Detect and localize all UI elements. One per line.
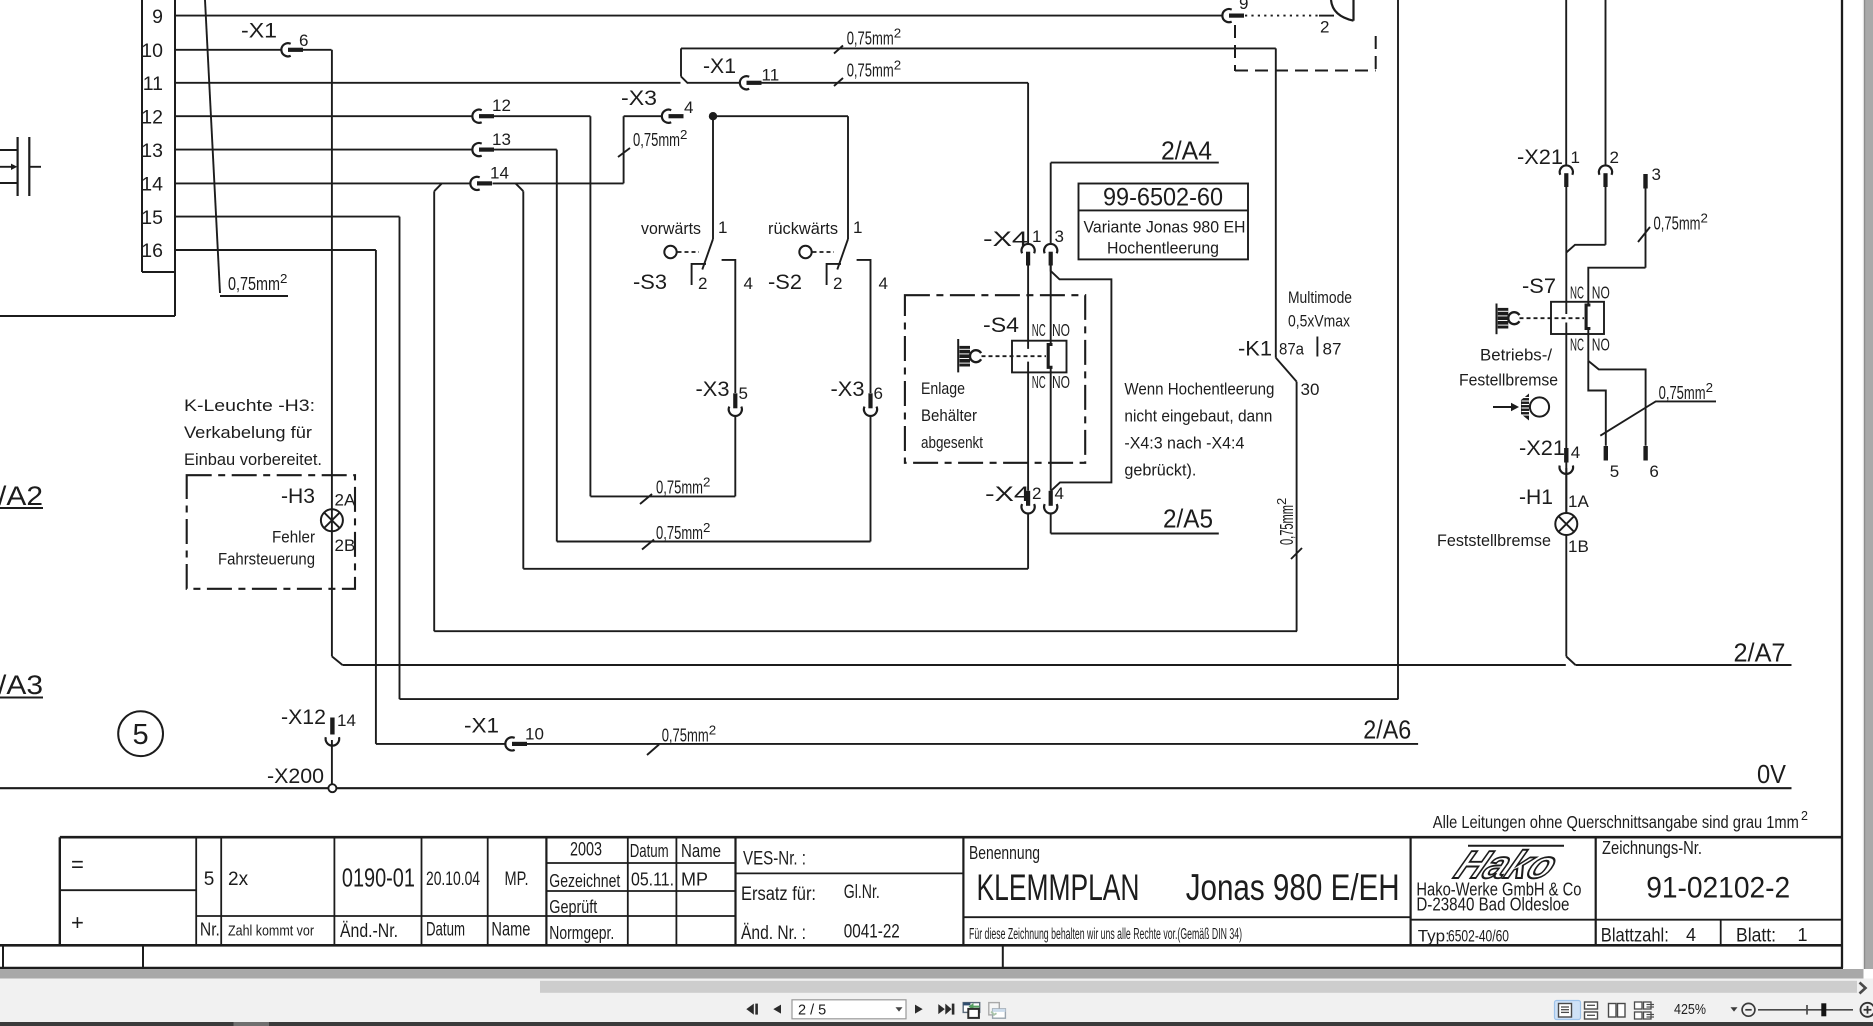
svg-text:-X12: -X12 (281, 705, 326, 729)
svg-text:2: 2 (698, 274, 707, 293)
svg-text:0,75mm: 0,75mm (228, 273, 280, 294)
svg-text:2: 2 (894, 58, 901, 73)
svg-text:14: 14 (490, 164, 509, 183)
svg-text:NC: NC (1570, 335, 1584, 355)
svg-text:-X1: -X1 (703, 54, 736, 78)
svg-text:0,5xVmax: 0,5xVmax (1288, 312, 1350, 331)
svg-text:3: 3 (1652, 165, 1661, 184)
svg-text:Ersatz für:: Ersatz für: (741, 884, 816, 905)
svg-text:5: 5 (739, 384, 748, 403)
svg-text:Fehler: Fehler (272, 529, 315, 547)
svg-text:Nr.: Nr. (200, 920, 220, 940)
svg-text:abgesenkt: abgesenkt (921, 433, 983, 452)
svg-text:13: 13 (492, 130, 511, 149)
svg-text:1: 1 (1798, 925, 1808, 945)
svg-text:1B: 1B (1568, 537, 1589, 556)
svg-text:Änd.-Nr.: Änd.-Nr. (340, 921, 398, 942)
svg-text:Feststellbremse: Feststellbremse (1437, 531, 1551, 550)
svg-text:1A: 1A (1568, 492, 1589, 511)
svg-text:-H3: -H3 (281, 484, 315, 508)
svg-text:-X4:3 nach -X4:4: -X4:3 nach -X4:4 (1124, 434, 1244, 453)
svg-text:05.11.: 05.11. (631, 870, 674, 890)
svg-text:4: 4 (1571, 443, 1580, 462)
svg-text:nicht eingebaut, dann: nicht eingebaut, dann (1124, 407, 1272, 426)
svg-text:0,75mm: 0,75mm (633, 129, 680, 150)
svg-text:Typ:: Typ: (1418, 927, 1450, 946)
svg-text:1: 1 (1032, 227, 1041, 246)
svg-text:2 / 5: 2 / 5 (798, 1002, 826, 1018)
svg-text:Datum: Datum (630, 841, 669, 861)
svg-text:K-Leuchte -H3:: K-Leuchte -H3: (184, 396, 315, 415)
svg-text:15: 15 (141, 207, 163, 229)
svg-text:0,75mm: 0,75mm (1659, 382, 1706, 403)
svg-text:99-6502-60: 99-6502-60 (1103, 184, 1223, 212)
svg-text:6: 6 (874, 384, 883, 403)
svg-text:-S7: -S7 (1522, 274, 1556, 298)
svg-text:12: 12 (492, 96, 511, 115)
svg-text:2/A7: 2/A7 (1734, 638, 1786, 668)
svg-text:3: 3 (1055, 227, 1064, 246)
svg-text:20.10.04: 20.10.04 (426, 869, 480, 890)
svg-text:2: 2 (703, 475, 710, 490)
svg-text:0,75mm: 0,75mm (656, 477, 703, 498)
svg-text:0,75mm: 0,75mm (1654, 213, 1701, 234)
svg-text:-S4: -S4 (983, 313, 1019, 337)
svg-text:2B: 2B (335, 536, 356, 555)
svg-text:16: 16 (141, 240, 163, 262)
svg-text:2: 2 (680, 127, 687, 142)
svg-text:Festellbremse: Festellbremse (1459, 371, 1558, 390)
svg-text:5: 5 (1610, 462, 1619, 481)
svg-text:Multimode: Multimode (1288, 288, 1352, 307)
svg-text:NO: NO (1592, 335, 1610, 355)
svg-text:Benennung: Benennung (969, 843, 1040, 863)
svg-text:/A2: /A2 (0, 481, 43, 511)
svg-text:2: 2 (1701, 211, 1708, 226)
svg-text:Betriebs-/: Betriebs-/ (1480, 346, 1552, 365)
svg-text:2: 2 (1801, 809, 1808, 823)
svg-text:NO: NO (1052, 320, 1070, 340)
svg-text:0,75mm: 0,75mm (1276, 505, 1297, 545)
svg-text:2A: 2A (335, 491, 356, 510)
svg-text:11: 11 (762, 66, 780, 85)
svg-text:11: 11 (143, 73, 163, 95)
svg-text:4: 4 (684, 98, 693, 117)
svg-text:425%: 425% (1674, 1002, 1706, 1018)
svg-text:1: 1 (853, 218, 862, 237)
svg-text:Behälter: Behälter (921, 406, 977, 425)
svg-text:0,75mm: 0,75mm (662, 725, 709, 746)
svg-text:30: 30 (1301, 380, 1320, 399)
svg-text:Alle Leitungen ohne Querschnit: Alle Leitungen ohne Querschnittsangabe s… (1433, 812, 1799, 832)
svg-text:Gl.Nr.: Gl.Nr. (844, 882, 880, 903)
svg-text:Variante Jonas 980 EH: Variante Jonas 980 EH (1084, 218, 1246, 237)
svg-text:9: 9 (152, 6, 163, 28)
svg-text:-S3: -S3 (633, 270, 667, 294)
svg-text:Zahl kommt vor: Zahl kommt vor (228, 923, 314, 940)
svg-text:4: 4 (744, 274, 753, 293)
svg-text:Wenn Hochentleerung: Wenn Hochentleerung (1124, 380, 1274, 399)
svg-text:0190-01: 0190-01 (342, 863, 415, 893)
svg-text:Name: Name (681, 841, 721, 861)
svg-text:14: 14 (337, 711, 356, 730)
svg-text:Name: Name (491, 920, 530, 941)
svg-text:10: 10 (141, 40, 163, 62)
svg-text:2/A5: 2/A5 (1163, 504, 1213, 534)
svg-text:+: + (71, 910, 84, 935)
svg-text:10: 10 (525, 725, 544, 744)
svg-text:VES-Nr. :: VES-Nr. : (743, 849, 806, 870)
svg-text:Geprüft: Geprüft (549, 897, 597, 917)
svg-text:2: 2 (833, 274, 842, 293)
svg-text:D-23840 Bad Oldesloe: D-23840 Bad Oldesloe (1416, 895, 1569, 915)
svg-text:Gezeichnet: Gezeichnet (549, 871, 620, 891)
svg-text:2: 2 (709, 723, 716, 738)
svg-text:4: 4 (1055, 484, 1064, 503)
svg-text:0V: 0V (1757, 759, 1787, 789)
svg-text:Normgepr.: Normgepr. (549, 923, 614, 943)
svg-text:4: 4 (1686, 925, 1696, 945)
svg-text:-X21: -X21 (1519, 436, 1565, 460)
svg-text:rückwärts: rückwärts (768, 219, 838, 238)
svg-text:-X21: -X21 (1517, 145, 1563, 169)
svg-text:Enlage: Enlage (921, 379, 965, 398)
svg-text:KLEMMPLAN: KLEMMPLAN (977, 867, 1140, 908)
svg-text:5: 5 (204, 869, 215, 890)
svg-text:Verkabelung für: Verkabelung für (184, 423, 312, 442)
svg-text:MP: MP (681, 870, 708, 890)
svg-text:-K1: -K1 (1238, 337, 1272, 361)
svg-text:2: 2 (1610, 148, 1619, 167)
svg-text:Für diese Zeichnung behalten w: Für diese Zeichnung behalten wir uns all… (969, 926, 1242, 943)
svg-text:2: 2 (1706, 380, 1713, 395)
svg-text:-X3: -X3 (831, 377, 865, 401)
svg-text:6502-40/60: 6502-40/60 (1448, 927, 1509, 946)
svg-text:0,75mm: 0,75mm (656, 522, 703, 543)
svg-text:1: 1 (1571, 148, 1580, 167)
svg-text:vorwärts: vorwärts (641, 219, 701, 238)
svg-text:4: 4 (879, 274, 888, 293)
svg-text:Fahrsteuerung: Fahrsteuerung (218, 551, 315, 569)
svg-text:Einbau vorbereitet.: Einbau vorbereitet. (184, 450, 322, 469)
svg-text:2: 2 (894, 25, 901, 40)
svg-text:0041-22: 0041-22 (844, 922, 900, 943)
svg-text:-X3: -X3 (696, 377, 730, 401)
svg-text:Jonas 980 E/EH: Jonas 980 E/EH (1186, 867, 1400, 908)
svg-text:0,75mm: 0,75mm (847, 60, 894, 81)
svg-text:NC: NC (1570, 282, 1584, 302)
svg-text:1: 1 (718, 218, 727, 237)
svg-text:Änd. Nr. :: Änd. Nr. : (741, 923, 806, 944)
svg-text:NC: NC (1032, 372, 1046, 392)
svg-text:-X3: -X3 (621, 86, 657, 110)
svg-text:6: 6 (299, 31, 308, 50)
svg-text:6: 6 (1649, 462, 1658, 481)
svg-text:12: 12 (141, 106, 163, 128)
svg-text:91-02102-2: 91-02102-2 (1646, 872, 1790, 905)
svg-text:2/A4: 2/A4 (1161, 136, 1212, 166)
svg-text:-H1: -H1 (1519, 485, 1553, 509)
svg-text:/A3: /A3 (0, 670, 43, 700)
svg-text:Blatt:: Blatt: (1736, 926, 1776, 947)
svg-text:Hochentleerung: Hochentleerung (1107, 239, 1219, 258)
svg-text:-X1: -X1 (464, 714, 499, 738)
svg-text:NC: NC (1032, 320, 1046, 340)
svg-text:-X1: -X1 (241, 19, 277, 43)
svg-text:2: 2 (1320, 18, 1329, 37)
svg-text:14: 14 (141, 174, 163, 196)
svg-text:9: 9 (1239, 0, 1248, 13)
svg-text:13: 13 (141, 140, 163, 162)
svg-text:5: 5 (133, 719, 149, 751)
svg-text:Zeichnungs-Nr.: Zeichnungs-Nr. (1602, 837, 1702, 858)
svg-text:NO: NO (1592, 282, 1610, 302)
svg-text:-X200: -X200 (267, 764, 324, 788)
svg-text:2: 2 (1274, 498, 1289, 505)
svg-text:Blattzahl:: Blattzahl: (1601, 926, 1669, 947)
svg-text:Datum: Datum (426, 920, 465, 941)
svg-text:87: 87 (1323, 340, 1342, 359)
svg-text:2: 2 (280, 271, 287, 286)
svg-text:=: = (71, 852, 84, 877)
svg-text:-X4: -X4 (985, 482, 1030, 506)
svg-text:NO: NO (1052, 372, 1070, 392)
svg-text:2: 2 (1032, 484, 1041, 503)
svg-text:2x: 2x (228, 869, 249, 890)
svg-text:gebrückt).: gebrückt). (1124, 461, 1196, 480)
svg-text:-S2: -S2 (768, 270, 802, 294)
svg-text:2003: 2003 (570, 840, 602, 861)
svg-text:MP.: MP. (505, 869, 529, 890)
svg-text:87a: 87a (1279, 340, 1304, 359)
svg-text:2: 2 (703, 520, 710, 535)
svg-text:2/A6: 2/A6 (1363, 714, 1411, 744)
svg-text:0,75mm: 0,75mm (847, 27, 894, 48)
